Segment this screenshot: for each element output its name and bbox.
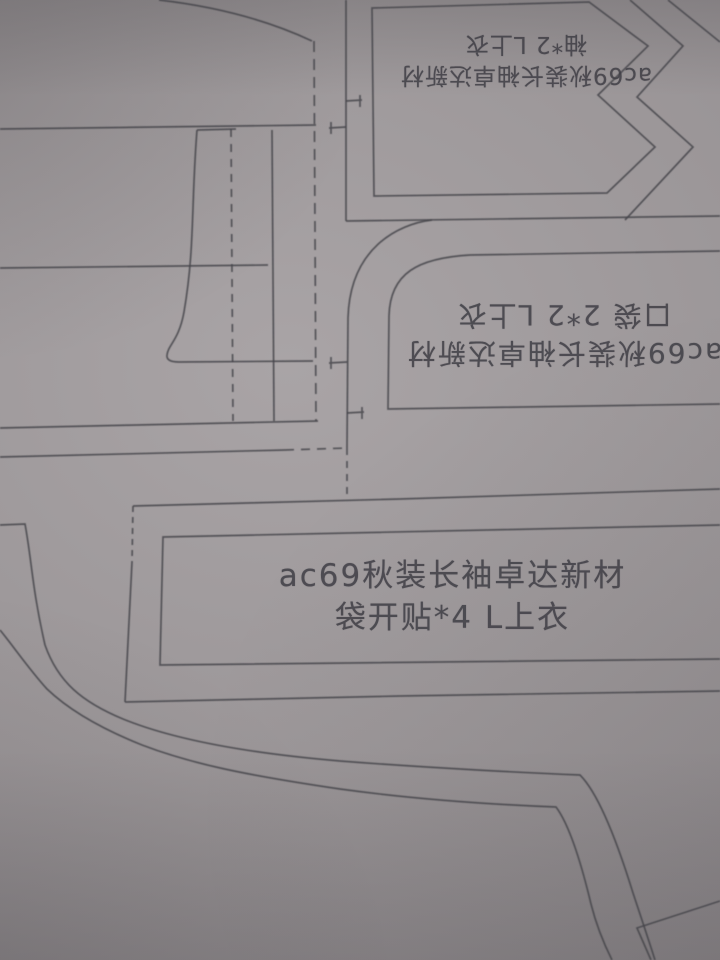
left-piece-middle-line	[0, 265, 268, 268]
notch-mark	[346, 95, 362, 107]
pocket-piece-outer-left	[347, 318, 348, 448]
label-pocket-facing: ac69秋装长袖卓达新材 袋开贴*4 L上衣	[175, 556, 720, 640]
label-pocket: ac69秋装长袖卓达新材 口袋 2*2 L上衣	[378, 296, 720, 372]
long-horizontal-cut-line	[0, 450, 285, 457]
label-sleeve-placket: ac69秋装长袖卓达新材 袖*2 L上衣	[368, 28, 684, 90]
left-piece-fold-line-right	[314, 41, 316, 421]
sleeve-placket-spec: 袖*2 L上衣	[368, 28, 684, 59]
facing-piece-outer-left-dashed	[132, 506, 133, 562]
long-horizontal-cut-line-dashed	[285, 448, 347, 450]
notch-mark	[329, 357, 347, 369]
pattern-lines-svg	[0, 0, 720, 960]
notch-mark	[347, 407, 364, 419]
left-piece-top-edge	[0, 125, 316, 129]
pattern-lines	[0, 0, 720, 960]
left-piece-bottom-edge	[0, 421, 318, 428]
hem-curve-inner	[0, 630, 612, 960]
left-piece-inner-curve	[167, 130, 313, 362]
divider-horizontal	[346, 216, 720, 221]
notch-mark	[329, 122, 346, 134]
left-piece-dashed-vertical	[231, 129, 233, 421]
pocket-spec: 口袋 2*2 L上衣	[378, 296, 720, 334]
sleeve-placket-title: ac69秋装长袖卓达新材	[368, 59, 684, 90]
facing-piece-outer-top	[133, 489, 720, 506]
bottom-right-piece-corner	[637, 901, 720, 960]
left-piece-neck-curve	[159, 0, 312, 41]
pocket-title: ac69秋装长袖卓达新材	[378, 334, 720, 372]
pattern-paper-photo: ac69秋装长袖卓达新材 袖*2 L上衣 ac69秋装长袖卓达新材 口袋 2*2…	[0, 0, 720, 960]
pocket-facing-title: ac69秋装长袖卓达新材	[175, 556, 720, 598]
left-piece-solid-vertical	[272, 130, 274, 421]
facing-piece-outer-left	[125, 562, 132, 702]
left-piece-inner-top	[197, 129, 236, 130]
pocket-facing-spec: 袋开贴*4 L上衣	[175, 598, 720, 640]
facing-piece-outer-bottom	[125, 691, 720, 702]
